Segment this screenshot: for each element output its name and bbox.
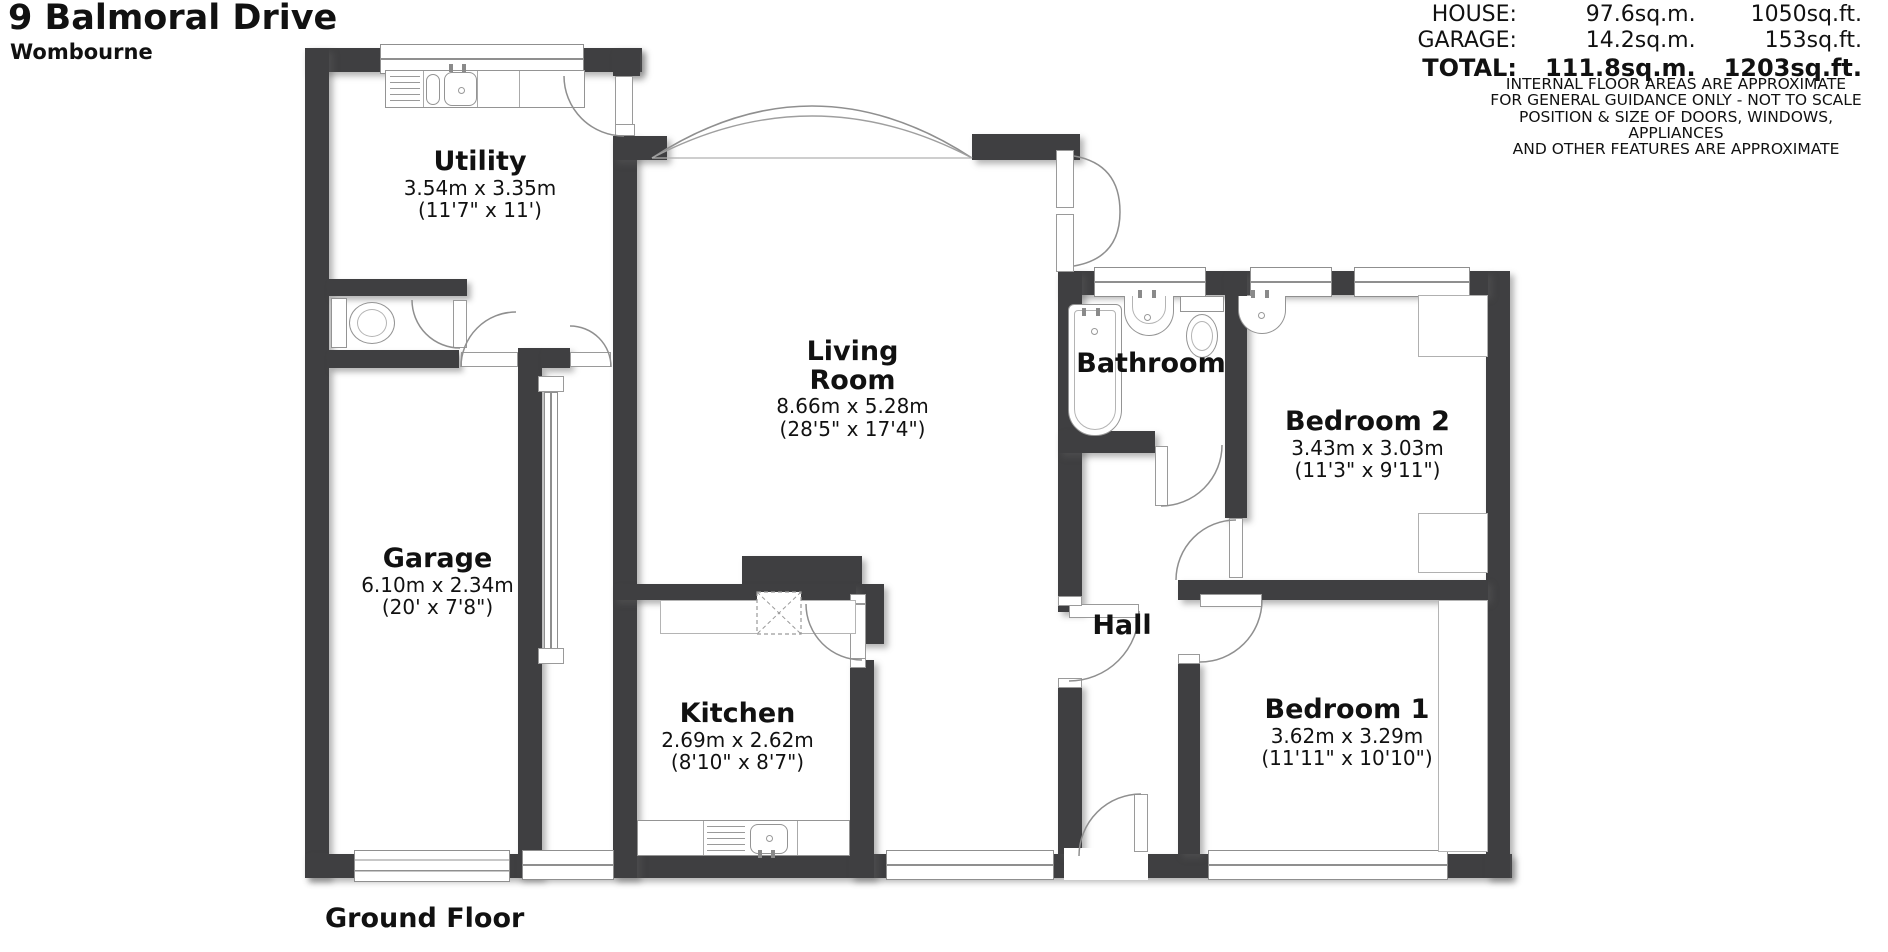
basin-tap-icon bbox=[1152, 290, 1156, 298]
bath-tap-icon bbox=[1096, 308, 1100, 316]
basin-drain-dot bbox=[1258, 312, 1265, 319]
screen-cap-top bbox=[538, 376, 564, 392]
room-dim-imperial: (11'7" x 11') bbox=[360, 199, 600, 222]
room-name: Living Room bbox=[788, 338, 918, 395]
wall-utility-right-stub bbox=[613, 48, 640, 76]
garage-door bbox=[354, 850, 510, 882]
utility-tap-icon bbox=[462, 64, 466, 72]
window-bed1-bottom bbox=[1208, 850, 1448, 880]
room-dim-imperial: (8'10" x 8'7") bbox=[620, 751, 855, 774]
counter-divider bbox=[477, 71, 478, 107]
room-dim-metric: 3.54m x 3.35m bbox=[360, 177, 600, 200]
area-row-label: GARAGE: bbox=[1417, 28, 1517, 54]
wc-cistern-icon bbox=[331, 298, 347, 348]
door-leaf-bed1 bbox=[1200, 594, 1262, 607]
wall-kitchen-top bbox=[613, 584, 856, 600]
wc-toilet-inner bbox=[357, 309, 387, 337]
door-leaf-bed2 bbox=[1229, 518, 1243, 578]
room-dim-imperial: (28'5" x 17'4") bbox=[745, 418, 960, 441]
room-name: Hall bbox=[1072, 612, 1172, 641]
door-leaf-bathroom bbox=[1155, 446, 1168, 506]
basin-drain-dot bbox=[1144, 314, 1151, 321]
area-row-sqm: 97.6sq.m. bbox=[1586, 2, 1696, 28]
bath-tap-icon bbox=[1082, 308, 1086, 316]
utility-sink-drain-dot bbox=[458, 87, 465, 94]
basin-tap-icon bbox=[1251, 290, 1255, 298]
bath-drain-dot bbox=[1091, 328, 1098, 335]
counter-divider bbox=[703, 821, 704, 855]
room-dim-metric: 6.10m x 2.34m bbox=[330, 574, 545, 597]
area-row-sqft: 153sq.ft. bbox=[1765, 28, 1862, 54]
front-door-opening bbox=[1064, 848, 1148, 880]
door-leaf-patio-top bbox=[1056, 150, 1074, 208]
room-dim-metric: 2.69m x 2.62m bbox=[620, 729, 855, 752]
door-arc-patio-bottom bbox=[1074, 212, 1120, 266]
kitchen-counter-top bbox=[660, 600, 856, 634]
bed2-wardrobe-top bbox=[1418, 295, 1488, 357]
room-label-bathroom: Bathroom bbox=[1062, 350, 1240, 379]
basin-tap-icon bbox=[1138, 290, 1142, 298]
wall-living-topleft-stub bbox=[613, 136, 667, 160]
room-dim-imperial: (11'11" x 10'10") bbox=[1232, 747, 1462, 770]
room-name: Bathroom bbox=[1062, 350, 1240, 379]
counter-divider bbox=[423, 71, 424, 107]
basin-tap-icon bbox=[1265, 290, 1269, 298]
room-label-garage: Garage 6.10m x 2.34m (20' x 7'8") bbox=[330, 545, 545, 619]
window-bed2-top-b bbox=[1354, 267, 1470, 297]
room-name: Garage bbox=[330, 545, 545, 574]
room-label-hall: Hall bbox=[1072, 612, 1172, 641]
room-dim-metric: 8.66m x 5.28m bbox=[745, 395, 960, 418]
door-cap-living-hall-top bbox=[1058, 596, 1082, 606]
room-dim-imperial: (11'3" x 9'11") bbox=[1255, 459, 1480, 482]
counter-divider bbox=[519, 71, 520, 107]
door-cap-living-hall-bottom bbox=[1058, 678, 1082, 688]
page-subtitle: Wombourne bbox=[10, 40, 153, 64]
screen-cap-bottom bbox=[538, 648, 564, 664]
door-arc-bed1 bbox=[1200, 600, 1262, 662]
wall-right-outer bbox=[1486, 271, 1510, 878]
door-cap-bed1 bbox=[1178, 654, 1200, 664]
door-leaf-front bbox=[1134, 794, 1148, 852]
bow-arch-outer bbox=[652, 106, 972, 158]
toilet-cistern-icon bbox=[1180, 296, 1224, 312]
wall-chimney-breast bbox=[742, 556, 862, 584]
window-corridor-bottom bbox=[522, 850, 614, 880]
room-label-utility: Utility 3.54m x 3.35m (11'7" x 11') bbox=[360, 148, 600, 222]
area-row-sqft: 1050sq.ft. bbox=[1751, 2, 1862, 28]
area-row-label: HOUSE: bbox=[1432, 2, 1517, 28]
floorplan-sheet: 9 Balmoral Drive Wombourne Ground Floor … bbox=[0, 0, 1888, 952]
bed2-wardrobe-bottom bbox=[1418, 513, 1488, 573]
wall-bathroom-bottom bbox=[1058, 431, 1155, 453]
wall-hall-left-lower bbox=[1058, 684, 1082, 854]
room-name: Kitchen bbox=[620, 700, 855, 729]
room-label-kitchen: Kitchen 2.69m x 2.62m (8'10" x 8'7") bbox=[620, 700, 855, 774]
room-label-living: Living Room 8.66m x 5.28m (28'5" x 17'4"… bbox=[745, 338, 960, 441]
window-kitchen-bottom bbox=[886, 850, 1054, 880]
room-dim-metric: 3.43m x 3.03m bbox=[1255, 437, 1480, 460]
kitchen-drainer-icon bbox=[707, 826, 745, 851]
door-leaf-patio-bottom bbox=[1056, 214, 1074, 272]
door-leaf-utility-garage bbox=[461, 352, 518, 367]
area-summary-table: HOUSE: 97.6sq.m. 1050sq.ft. GARAGE: 14.2… bbox=[1417, 2, 1862, 82]
door-leaf-wc bbox=[453, 300, 467, 348]
wall-left-outer bbox=[305, 48, 329, 878]
door-arc-bed2 bbox=[1176, 520, 1236, 580]
glazed-screen bbox=[544, 392, 558, 650]
kitchen-tap-icon bbox=[758, 850, 762, 858]
door-leaf-utility-corridor bbox=[570, 352, 611, 367]
window-bathroom-top bbox=[1094, 267, 1206, 297]
toilet-bowl-inner bbox=[1191, 321, 1213, 351]
window-bed2-top-a bbox=[1250, 267, 1332, 297]
room-label-bed2: Bedroom 2 3.43m x 3.03m (11'3" x 9'11") bbox=[1255, 408, 1480, 482]
room-dim-metric: 3.62m x 3.29m bbox=[1232, 725, 1462, 748]
wall-hall-right bbox=[1178, 662, 1200, 854]
area-row-sqm: 14.2sq.m. bbox=[1586, 28, 1696, 54]
floor-label: Ground Floor bbox=[325, 903, 524, 934]
kitchen-tap-icon bbox=[771, 850, 775, 858]
utility-tap-icon bbox=[449, 64, 453, 72]
room-dim-imperial: (20' x 7'8") bbox=[330, 596, 545, 619]
wall-utility-band-post bbox=[542, 348, 570, 368]
counter-divider bbox=[797, 821, 798, 855]
disclaimer-text: INTERNAL FLOOR AREAS ARE APPROXIMATE FOR… bbox=[1470, 76, 1882, 157]
utility-sink-bowl-small bbox=[426, 74, 440, 105]
kitchen-sink-drain-dot bbox=[766, 835, 773, 842]
door-cap-utility-entry bbox=[615, 124, 635, 136]
door-arc-bathroom bbox=[1161, 445, 1222, 506]
room-name: Bedroom 2 bbox=[1255, 408, 1480, 437]
page-title: 9 Balmoral Drive bbox=[8, 0, 337, 37]
bow-arch-inner bbox=[652, 116, 972, 158]
wall-wc-bottom bbox=[327, 350, 459, 368]
room-name: Bedroom 1 bbox=[1232, 696, 1462, 725]
room-label-bed1: Bedroom 1 3.62m x 3.29m (11'11" x 10'10"… bbox=[1232, 696, 1462, 770]
room-name: Utility bbox=[360, 148, 600, 177]
wall-wc-top bbox=[327, 279, 467, 296]
door-cap-kitchen-bottom bbox=[850, 658, 866, 668]
utility-drainer-icon bbox=[390, 76, 420, 103]
door-arc-patio-top bbox=[1074, 156, 1120, 212]
door-arc-front bbox=[1079, 794, 1141, 856]
